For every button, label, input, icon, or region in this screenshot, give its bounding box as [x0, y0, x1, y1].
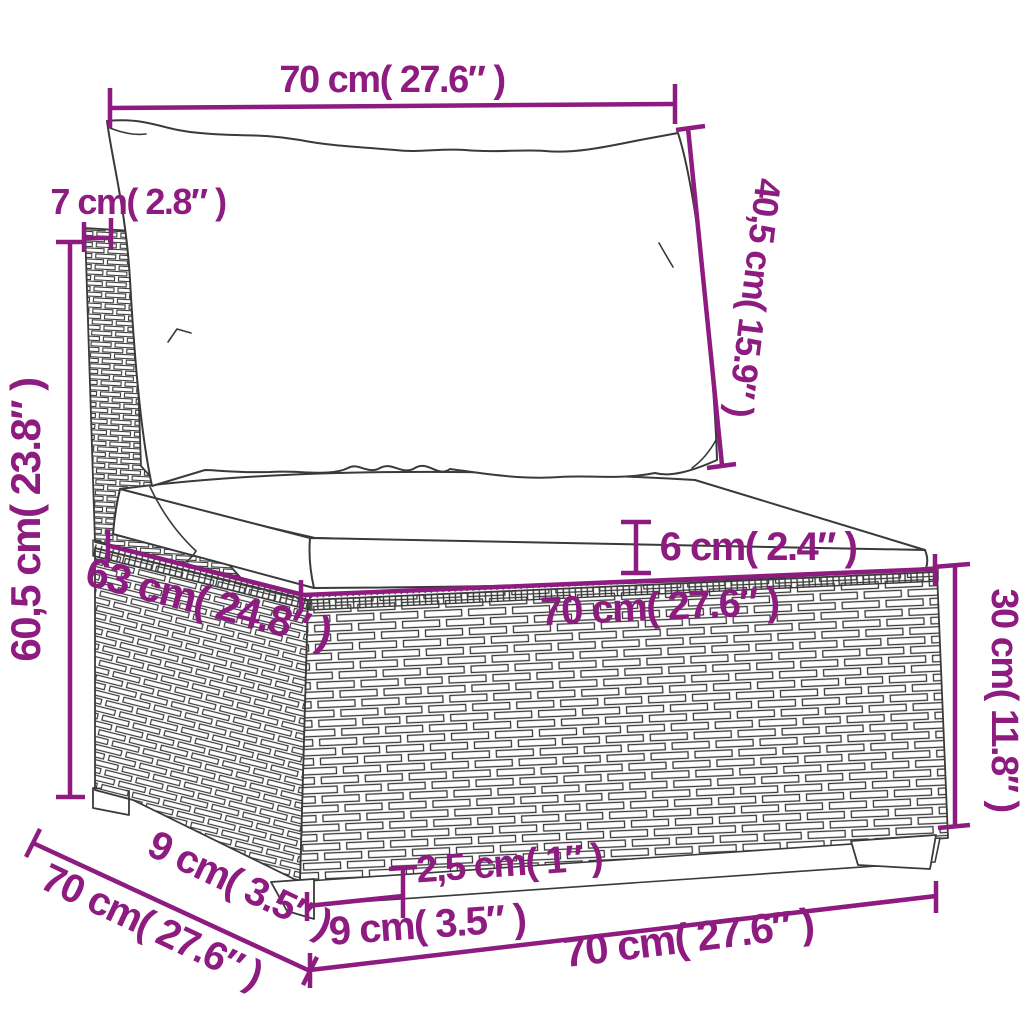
back-cushion-width-label: 70 cm( 27.6″ )	[279, 59, 504, 101]
base-front-width-label: 70 cm( 27.6″ )	[561, 899, 816, 976]
back-cushion-height-label: 40,5 cm( 15.9″ )	[719, 176, 789, 419]
back-cushion	[107, 120, 717, 486]
product-dimension-diagram: 70 cm( 27.6″ ) 7 cm( 2.8″ ) 40,5 cm( 15.…	[0, 0, 1024, 1024]
back-panel-thickness-label: 7 cm( 2.8″ )	[50, 181, 226, 222]
dim-overall-height	[56, 242, 85, 797]
seat-cushion-thickness-label: 6 cm( 2.4″ )	[660, 525, 857, 569]
base-height-label: 30 cm( 11.8″ )	[983, 588, 1024, 811]
front-foot-inset-label: 9 cm( 3.5″ )	[327, 896, 527, 954]
sofa-line-art	[85, 120, 948, 919]
front-right-foot	[851, 835, 936, 869]
overall-height-label: 60,5 cm( 23.8″ )	[2, 378, 49, 661]
diagram-canvas: 70 cm( 27.6″ ) 7 cm( 2.8″ ) 40,5 cm( 15.…	[0, 0, 1024, 1024]
